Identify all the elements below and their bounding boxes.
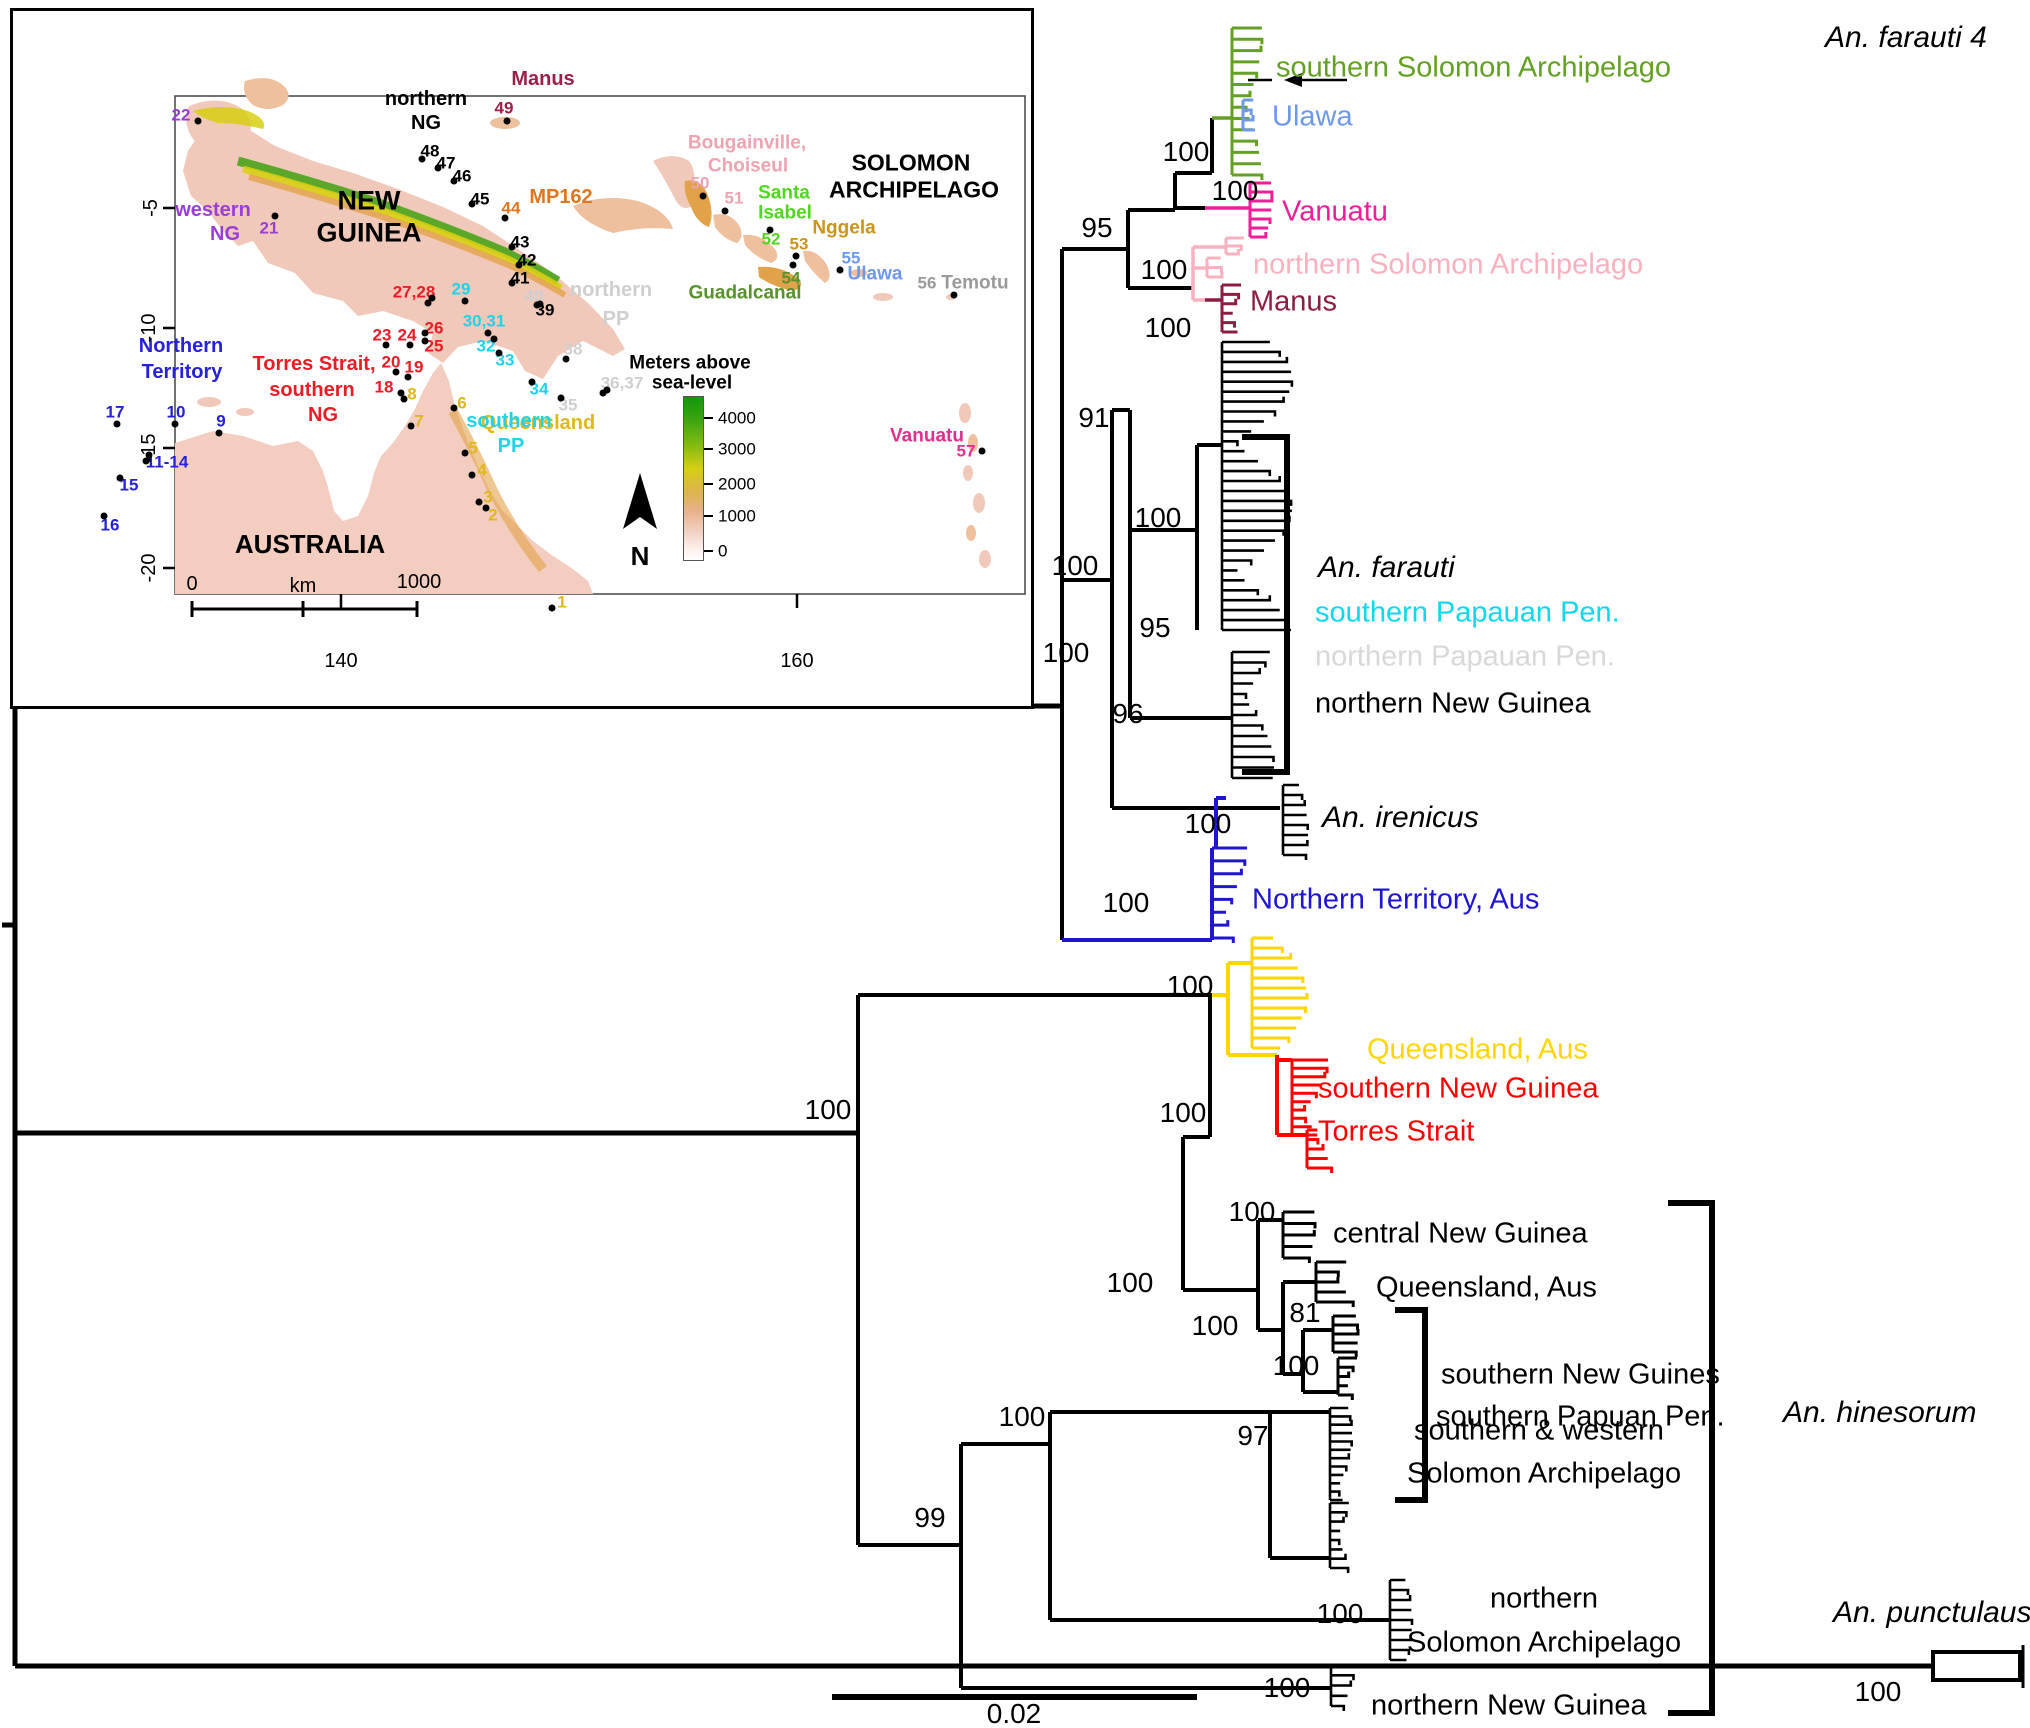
clade-comb [1390,1580,1412,1660]
arrow-icon [1284,73,1347,87]
tree-lower-branches [858,995,1390,1688]
clade-comb [1283,785,1308,860]
clade-comb [1316,1262,1353,1307]
hinesorum-bracket [1668,1203,1712,1713]
clade-comb [1207,258,1222,277]
nt-branches [1062,798,1226,940]
clade-comb [1232,28,1262,180]
elevation-legend-gradient [683,396,704,561]
clade-comb [1222,285,1241,332]
clade-comb [1330,1503,1349,1573]
clade-comb [1252,938,1307,1048]
clade-comb [1232,652,1274,778]
clade-comb [1283,1212,1315,1263]
clade-comb [1250,183,1272,237]
clade-comb [1330,1408,1352,1500]
map-inset: Meters above sea-level N 0 km 1000 NEWGU… [10,8,1034,709]
tree-upper-branches [1062,118,1280,940]
clade-comb [1222,342,1292,630]
tree-backbone [2,706,1933,1666]
figure-canvas: Meters above sea-level N 0 km 1000 NEWGU… [0,0,2030,1728]
clade-comb [1243,100,1255,130]
clade-comb [1333,1316,1358,1357]
map-scale-bar [192,601,417,617]
punctulaus-collapsed-clade [1933,1645,2023,1688]
clade-comb [1338,1358,1357,1400]
southern-ng-bracket [1395,1310,1425,1500]
clade-comb [1331,1665,1356,1711]
clade-comb [1292,1060,1328,1135]
clade-combs [1207,28,1412,1711]
farauti-bracket [1242,437,1287,772]
clade-comb [1226,238,1244,254]
map-graphic [13,11,1031,706]
clade-comb [1212,848,1247,943]
